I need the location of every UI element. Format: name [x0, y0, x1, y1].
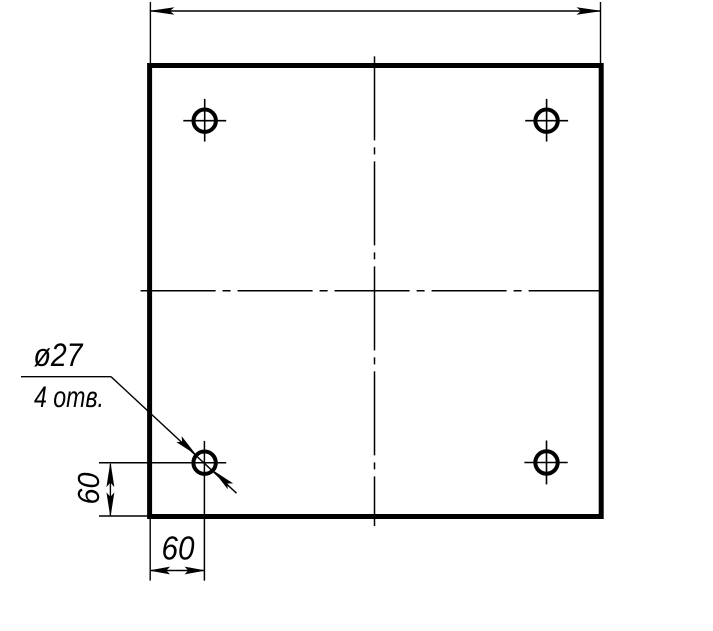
svg-text:ø27: ø27 — [34, 337, 84, 373]
svg-text:4 отв.: 4 отв. — [34, 381, 104, 414]
svg-text:60: 60 — [162, 530, 196, 567]
svg-text:60: 60 — [71, 473, 106, 505]
